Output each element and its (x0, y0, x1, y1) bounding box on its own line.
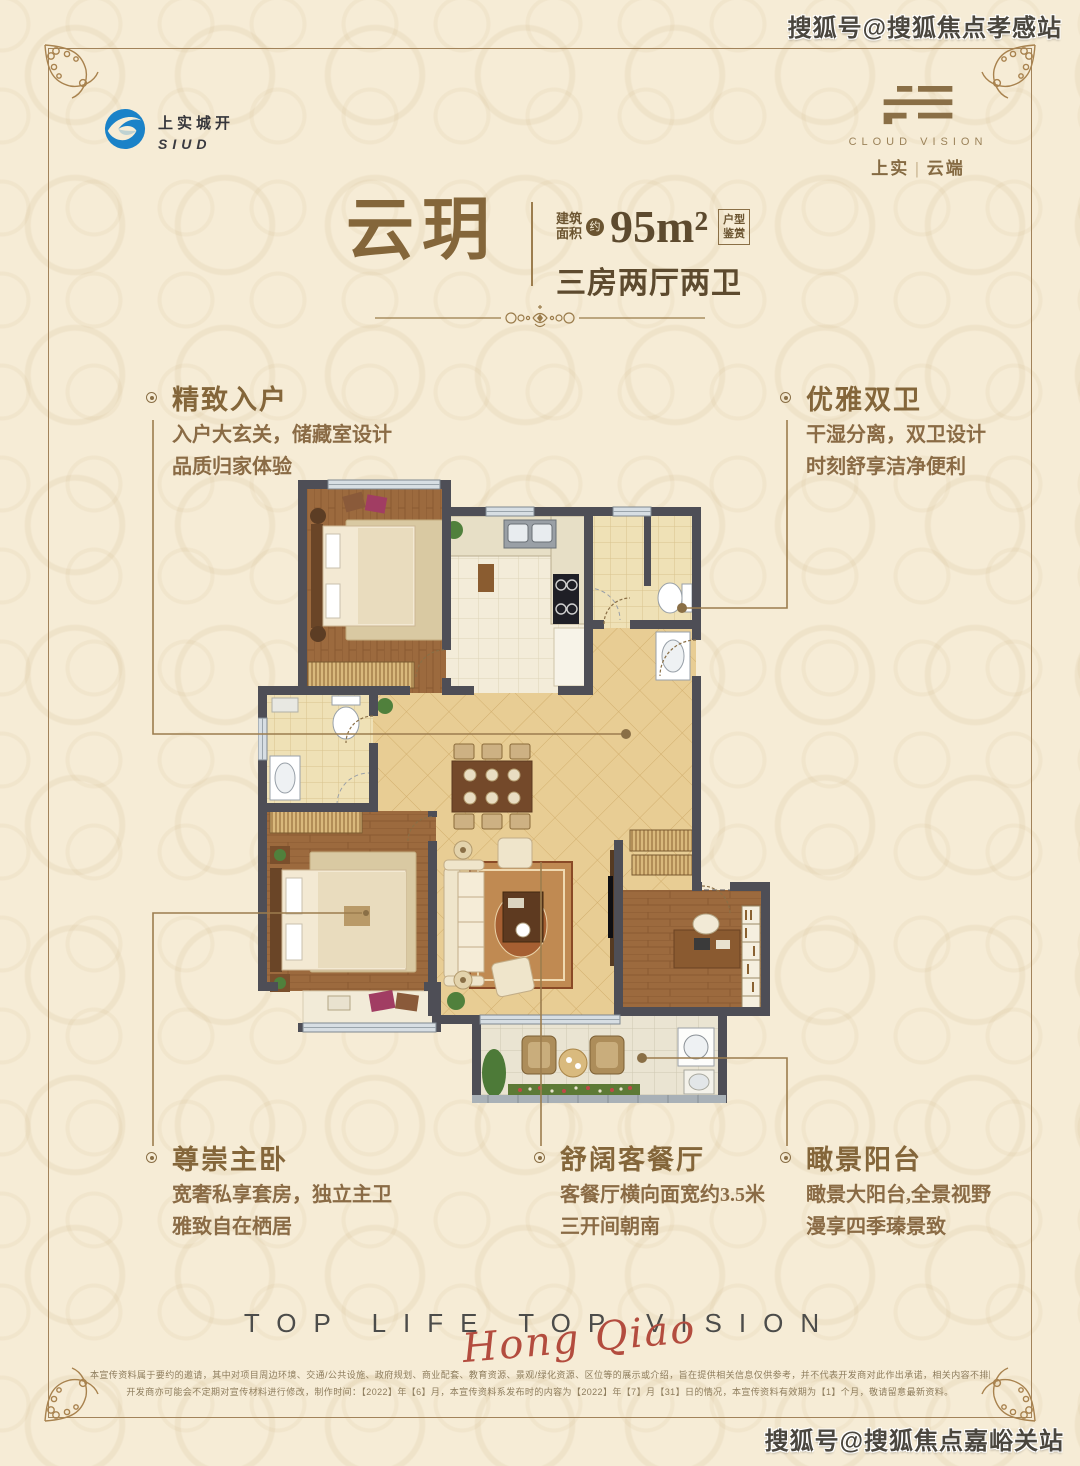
bullet-icon (534, 1152, 545, 1163)
area-value: 95m² (610, 204, 708, 250)
developer-abbr: SIUD (158, 136, 234, 152)
area-label: 建筑面积 (556, 212, 582, 242)
unit-name: 云玥 (346, 196, 498, 264)
feature-line: 瞰景大阳台,全景视野 (780, 1183, 1050, 1208)
watermark-top: 搜狐号@搜狐焦点孝感站 (788, 8, 1062, 43)
bullet-icon (146, 392, 157, 403)
feature-title: 优雅双卫 (780, 386, 1050, 416)
siud-logo-icon (104, 108, 146, 150)
feature-living-dining: 舒阔客餐厅 客餐厅横向面宽约3.5米 三开间朝南 (534, 1146, 804, 1240)
approx-badge: 约 (586, 218, 604, 236)
unit-specs: 建筑面积 约 95m² 户型鉴赏 (556, 204, 756, 250)
feature-double-bath: 优雅双卫 干湿分离，双卫设计 时刻舒享洁净便利 (780, 386, 1050, 480)
feature-title: 瞰景阳台 (780, 1146, 1050, 1176)
disclaimer-line-1: 本宣传资料属于要约的邀请，其中对项目周边环境、交通/公共设施、政府规划、商业配套… (90, 1368, 990, 1381)
cloud-mark-icon (870, 86, 966, 128)
feature-line: 干湿分离，双卫设计 (780, 423, 1050, 448)
corner-flourish-icon (42, 42, 112, 112)
project-logo-cn-left: 上实 (871, 159, 909, 178)
floor-plan (258, 478, 774, 1126)
logo-separator: | (915, 159, 920, 179)
project-logo-en: CLOUD VISION (828, 136, 1008, 148)
balcony-railing (472, 1095, 726, 1103)
divider-diamond (537, 314, 543, 322)
feature-title: 精致入户 (146, 386, 416, 416)
feature-line: 宽奢私享套房，独立主卫 (146, 1183, 416, 1208)
feature-line: 客餐厅横向面宽约3.5米 (534, 1183, 804, 1208)
disclaimer-line-2: 开发商亦可能会不定期对宣传材料进行修改，制作时间：【2022】年【6】月，本宣传… (90, 1385, 990, 1398)
title-divider (531, 202, 533, 286)
bullet-icon (146, 1152, 157, 1163)
feature-entry: 精致入户 入户大玄关，储藏室设计 品质归家体验 (146, 386, 416, 480)
feature-line: 时刻舒享洁净便利 (780, 455, 1050, 480)
developer-name: 上实城开 (158, 112, 234, 133)
project-logo-cn-right: 云端 (927, 159, 965, 178)
layout-text: 三房两厅两卫 (556, 258, 748, 302)
project-logo: CLOUD VISION 上实|云端 (828, 86, 1008, 179)
feature-balcony: 瞰景阳台 瞰景大阳台,全景视野 漫享四季瑧景致 (780, 1146, 1050, 1240)
bullet-icon (780, 1152, 791, 1163)
feature-line: 入户大玄关，储藏室设计 (146, 423, 416, 448)
feature-title: 舒阔客餐厅 (534, 1146, 804, 1176)
feature-line: 雅致自在栖居 (146, 1215, 416, 1240)
feature-line: 品质归家体验 (146, 455, 416, 480)
feature-line: 漫享四季瑧景致 (780, 1215, 1050, 1240)
project-logo-cn: 上实|云端 (828, 154, 1008, 179)
watermark-bottom: 搜狐号@搜狐焦点嘉峪关站 (765, 1421, 1064, 1456)
feature-line: 三开间朝南 (534, 1215, 804, 1240)
poster: 上实城开 SIUD CLOUD VISION 上实|云端 云玥 建筑面积 约 9… (0, 0, 1080, 1466)
feature-master-bedroom: 尊崇主卧 宽奢私享套房，独立主卫 雅致自在栖居 (146, 1146, 416, 1240)
view-badge: 户型鉴赏 (718, 209, 750, 246)
ornamental-divider (375, 300, 705, 336)
bullet-icon (780, 392, 791, 403)
developer-logo: 上实城开 SIUD (104, 108, 234, 152)
wash-basin-nook (656, 632, 690, 680)
feature-title: 尊崇主卧 (146, 1146, 416, 1176)
